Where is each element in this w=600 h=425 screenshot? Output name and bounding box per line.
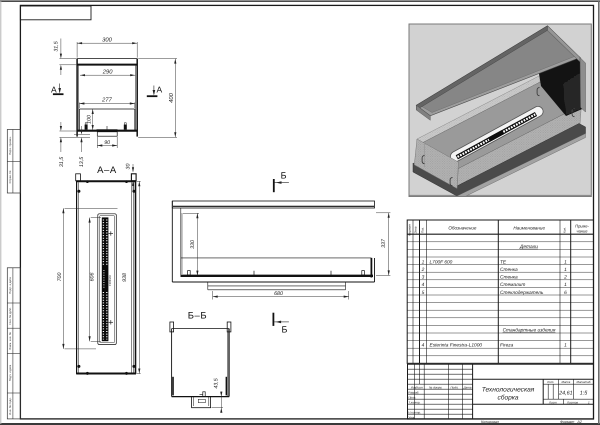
svg-text:L700F 600: L700F 600 (430, 259, 453, 265)
svg-text:100: 100 (87, 115, 93, 124)
svg-text:Подп. и дата: Подп. и дата (8, 277, 12, 294)
svg-text:700: 700 (57, 273, 63, 282)
svg-text:Дата: Дата (463, 385, 472, 389)
svg-text:290: 290 (102, 68, 113, 75)
svg-text:Формат А2: Формат А2 (560, 420, 582, 424)
svg-text:680: 680 (274, 291, 283, 297)
svg-text:Стемалит: Стемалит (500, 282, 525, 288)
svg-text:Б–Б: Б–Б (188, 311, 208, 322)
svg-text:337: 337 (381, 238, 387, 248)
svg-text:Инв. № подл.: Инв. № подл. (8, 397, 12, 415)
svg-text:Справ. №: Справ. № (8, 171, 12, 184)
svg-text:1: 1 (422, 259, 425, 265)
svg-text:2: 2 (563, 275, 567, 281)
svg-text:277: 277 (101, 97, 112, 104)
svg-text:Стенка: Стенка (500, 267, 518, 273)
svg-text:Пров.: Пров. (408, 395, 416, 399)
svg-text:400: 400 (168, 92, 175, 102)
svg-text:Лист: Лист (548, 400, 557, 404)
svg-text:Стеклодержатель: Стеклодержатель (500, 290, 544, 296)
svg-text:13,5: 13,5 (79, 157, 85, 167)
svg-text:Fireza: Fireza (500, 342, 514, 348)
svg-text:1: 1 (564, 267, 567, 273)
svg-text:A–A: A–A (97, 165, 117, 176)
svg-text:Формат: Формат (408, 224, 412, 236)
svg-text:Лист: Лист (414, 385, 423, 389)
svg-text:Обозначение: Обозначение (448, 225, 477, 230)
svg-text:938: 938 (122, 273, 128, 282)
svg-text:Б: Б (281, 171, 287, 181)
svg-text:Стенка: Стенка (500, 275, 518, 281)
svg-text:Esterinta Finestra-L1000: Esterinta Finestra-L1000 (430, 342, 483, 348)
svg-text:Перв. примен.: Перв. примен. (8, 136, 12, 155)
svg-text:3: 3 (422, 275, 425, 281)
svg-text:Взам. инв. №: Взам. инв. № (8, 332, 12, 349)
svg-text:300: 300 (102, 37, 112, 44)
svg-text:4: 4 (422, 282, 425, 288)
svg-text:Подп. и дата: Подп. и дата (8, 364, 12, 381)
svg-text:Стандартные изделия: Стандартные изделия (503, 327, 556, 333)
svg-text:606: 606 (89, 273, 95, 282)
svg-text:Листов: Листов (566, 400, 578, 404)
svg-text:Подп.: Подп. (451, 385, 459, 389)
svg-text:№ докум.: № докум. (429, 385, 442, 389)
svg-text:Кол.: Кол. (562, 227, 566, 233)
svg-text:4: 4 (422, 342, 425, 348)
svg-text:ТЕ: ТЕ (500, 259, 507, 265)
svg-text:330: 330 (190, 240, 196, 249)
svg-text:Утв.: Утв. (408, 415, 415, 419)
svg-text:FIREZO: FIREZO (108, 274, 112, 286)
svg-text:Инв. № дубл.: Инв. № дубл. (8, 307, 12, 325)
svg-text:Т.контр.: Т.контр. (408, 400, 420, 404)
svg-text:Технологическая: Технологическая (482, 387, 535, 394)
svg-text:Зона: Зона (414, 226, 418, 233)
svg-text:6: 6 (564, 290, 567, 296)
svg-text:Разраб.: Разраб. (408, 390, 419, 394)
svg-text:сборка: сборка (497, 395, 518, 402)
svg-text:Масса: Масса (561, 380, 570, 384)
svg-text:Б: Б (282, 325, 288, 335)
svg-text:1:5: 1:5 (580, 391, 588, 397)
svg-text:31,5: 31,5 (59, 157, 65, 167)
svg-text:Наименование: Наименование (513, 225, 545, 230)
svg-text:A: A (157, 85, 163, 95)
svg-text:Лит.: Лит. (546, 380, 554, 384)
svg-text:Масштаб: Масштаб (576, 380, 590, 384)
svg-text:Поз.: Поз. (420, 227, 424, 233)
svg-text:Детали: Детали (519, 244, 538, 250)
svg-text:5: 5 (422, 290, 425, 296)
svg-text:90: 90 (104, 140, 110, 146)
svg-text:24,61: 24,61 (558, 391, 573, 397)
svg-text:43,5: 43,5 (213, 378, 219, 388)
svg-text:чание: чание (577, 228, 589, 233)
svg-text:1: 1 (564, 282, 567, 288)
svg-text:1: 1 (564, 342, 567, 348)
svg-text:Н.контр.: Н.контр. (408, 410, 421, 414)
svg-text:1: 1 (564, 259, 567, 265)
svg-text:A: A (51, 85, 57, 95)
svg-text:Копировал: Копировал (481, 420, 499, 424)
svg-text:31,5: 31,5 (54, 41, 60, 51)
svg-text:2: 2 (421, 267, 425, 273)
svg-text:30: 30 (125, 164, 131, 170)
